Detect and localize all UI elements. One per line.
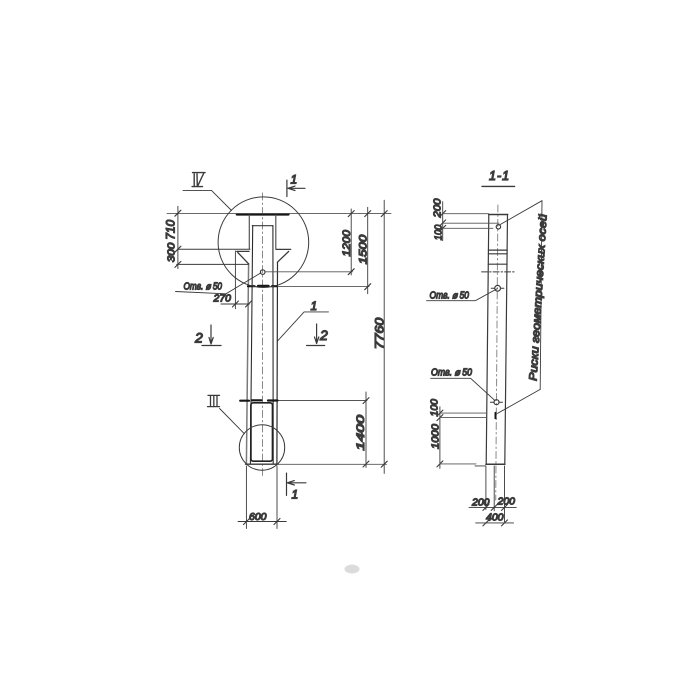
svg-text:1200: 1200 [341, 229, 353, 256]
svg-text:Отв. ⌀ 50: Отв. ⌀ 50 [430, 291, 470, 302]
svg-text:1: 1 [292, 488, 299, 502]
svg-text:1: 1 [291, 173, 298, 187]
svg-text:Отв. ⌀ 50: Отв. ⌀ 50 [184, 282, 223, 293]
svg-text:1400: 1400 [355, 414, 367, 451]
svg-text:600: 600 [249, 511, 267, 523]
svg-text:7760: 7760 [375, 317, 387, 349]
svg-text:100: 100 [429, 399, 441, 417]
svg-text:200: 200 [432, 198, 444, 218]
svg-text:100: 100 [433, 225, 445, 241]
svg-text:1-1: 1-1 [489, 169, 510, 183]
svg-text:200: 200 [497, 496, 516, 508]
svg-text:2: 2 [194, 330, 203, 346]
svg-text:1000: 1000 [430, 424, 442, 449]
svg-text:710: 710 [164, 219, 178, 239]
svg-text:2: 2 [319, 327, 328, 343]
svg-text:300: 300 [166, 243, 178, 263]
svg-text:Риски геометрических осей: Риски геометрических осей [528, 214, 550, 381]
svg-text:400: 400 [486, 512, 504, 524]
svg-text:1: 1 [311, 299, 318, 313]
svg-text:200: 200 [471, 496, 490, 508]
svg-text:270: 270 [213, 293, 232, 305]
svg-text:Отв. ⌀ 50: Отв. ⌀ 50 [431, 367, 472, 378]
svg-text:1500: 1500 [358, 234, 370, 265]
